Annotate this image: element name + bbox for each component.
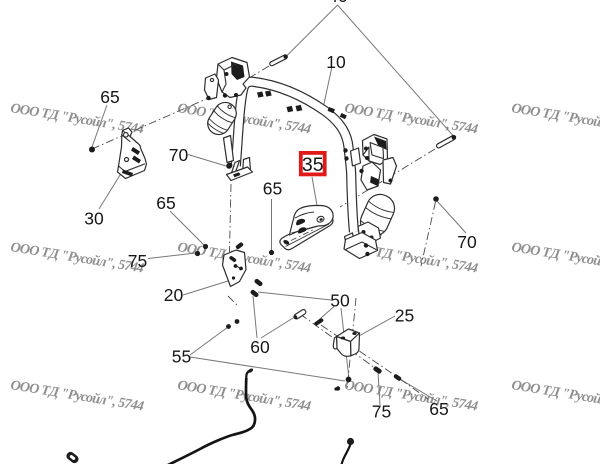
svg-text:40: 40 xyxy=(328,0,348,6)
svg-text:75: 75 xyxy=(128,251,147,271)
svg-text:70: 70 xyxy=(169,145,189,165)
svg-text:30: 30 xyxy=(84,209,104,229)
svg-text:65: 65 xyxy=(429,399,448,419)
svg-text:75: 75 xyxy=(372,402,391,422)
svg-text:65: 65 xyxy=(263,179,282,199)
svg-text:60: 60 xyxy=(250,337,270,357)
svg-text:50: 50 xyxy=(330,291,350,311)
svg-text:10: 10 xyxy=(326,52,346,72)
svg-text:70: 70 xyxy=(457,232,477,252)
svg-text:65: 65 xyxy=(100,87,119,107)
svg-text:55: 55 xyxy=(172,347,191,367)
svg-text:35: 35 xyxy=(302,154,324,176)
svg-text:20: 20 xyxy=(164,285,184,305)
svg-text:25: 25 xyxy=(395,306,414,326)
svg-text:65: 65 xyxy=(156,193,175,213)
